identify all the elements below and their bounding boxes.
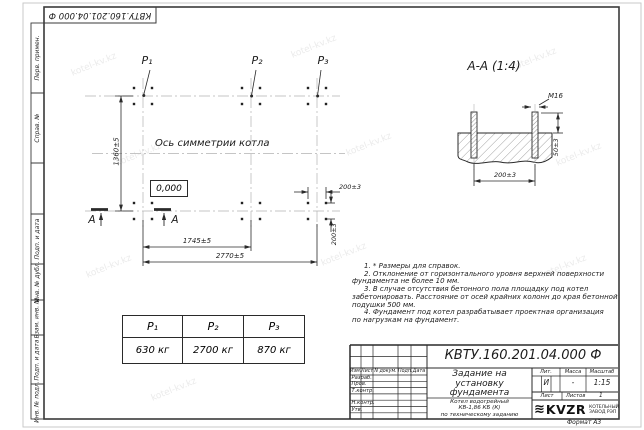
scale-value: 1:15 [586, 379, 618, 387]
load-label-p1: P₁ [136, 55, 158, 66]
staff-row-prov: Пров. [352, 382, 367, 387]
margin-field-podp-data: Подп. и дата [32, 214, 44, 264]
rev-header-data: Дата [411, 370, 427, 375]
load-leaders [143, 70, 321, 97]
margin-field-podp-data-2: Подп. и дата [32, 335, 44, 384]
staff-row-utv: Утв. [352, 408, 363, 413]
lit-value: И [542, 379, 552, 387]
dim-bolt-spacing-h: 200±3 [339, 184, 361, 191]
corner-stamp-number: КВТУ.160.201.04.000 Ф [44, 7, 156, 23]
lit-header: Лит. [532, 370, 560, 375]
title-block-doc-number: КВТУ.160.201.04.000 Ф [430, 349, 616, 362]
margin-field-sprav-no: Справ. № [32, 93, 44, 163]
margin-field-vzam-inv: Взам. инв. № [32, 300, 44, 335]
dim-section-spacing-200: 200±3 [478, 172, 532, 179]
rev-header-izm: Изм. [350, 370, 361, 375]
section-title: А-А (1:4) [448, 60, 540, 72]
plan-axes [85, 78, 345, 230]
staff-row-nkontr: Н.контр. [352, 401, 375, 406]
logo-mark-icon: ≋ [534, 403, 545, 416]
section-cut-marks [91, 210, 171, 227]
title-block-title-line1: Задание на [427, 370, 532, 379]
bolt-thread-label: M16 [548, 93, 563, 100]
elevation-value: 0,000 [156, 184, 182, 194]
logo-sub-line2: ЗАВОД РЭП [589, 410, 619, 415]
note-line: по нагрузкам на фундамент. [352, 317, 616, 325]
loads-table-header: P₁ [123, 316, 183, 338]
scale-header: Масштаб [586, 370, 618, 375]
load-label-p2: P₂ [246, 55, 268, 66]
loads-table-value: 870 кг [244, 338, 304, 363]
company-logo: ≋ KVZR КОТЕЛЬНЫЙ ЗАВОД РЭП [534, 400, 618, 419]
sheets-value: 1 [599, 394, 603, 400]
loads-table-header: P₃ [244, 316, 304, 338]
loads-table: P₁ P₂ P₃ 630 кг 2700 кг 870 кг [122, 315, 305, 364]
symmetry-axis-label: Ось симметрии котла [155, 139, 270, 149]
dim-span-2770: 2770±5 [203, 253, 257, 260]
margin-field-inv-dubl: Инв. № дубл. [32, 264, 44, 300]
margin-field-inv-podl: Инв. № подл. [32, 384, 44, 419]
section-mark-a-left: А [86, 215, 98, 226]
section-mark-a-right: А [169, 215, 181, 226]
loads-table-value: 630 кг [123, 338, 183, 363]
sheets-label: Листов [566, 394, 585, 399]
rev-header-doc: N докум. [373, 370, 398, 375]
mass-header: Масса [560, 370, 586, 375]
elevation-mark: 0,000 [150, 180, 188, 197]
dim-protrusion-50: 50±3 [553, 127, 560, 167]
dim-bolt-spacing-v: 200±3 [331, 212, 338, 256]
product-name-line3: по техническому заданию [427, 413, 532, 419]
logo-name: KVZR [546, 402, 586, 417]
margin-field-perv-primen: Перв. примен. [32, 23, 44, 93]
title-block-title-line3: фундамента [427, 389, 532, 398]
load-label-p3: P₃ [312, 55, 334, 66]
dim-height-1360: 1360±5 [114, 130, 121, 174]
staff-row-tkontr: Т.контр. [352, 389, 374, 394]
dim-span-1745: 1745±5 [170, 238, 224, 245]
sheet-label: Лист [532, 394, 562, 399]
loads-table-value: 2700 кг [183, 338, 244, 363]
rev-header-podp: Подп. [398, 370, 411, 375]
plan-dimensions [115, 96, 340, 266]
technical-notes: 1. * Размеры для справок. 2. Отклонение … [352, 263, 616, 325]
loads-table-header: P₂ [183, 316, 244, 338]
drawing-sheet: kotel-kv.kz kotel-kv.kz kotel-kv.kz kote… [0, 0, 644, 430]
rev-header-list: Лист [361, 370, 373, 375]
format-label: Формат А3 [567, 420, 601, 426]
mass-value: - [560, 379, 586, 387]
